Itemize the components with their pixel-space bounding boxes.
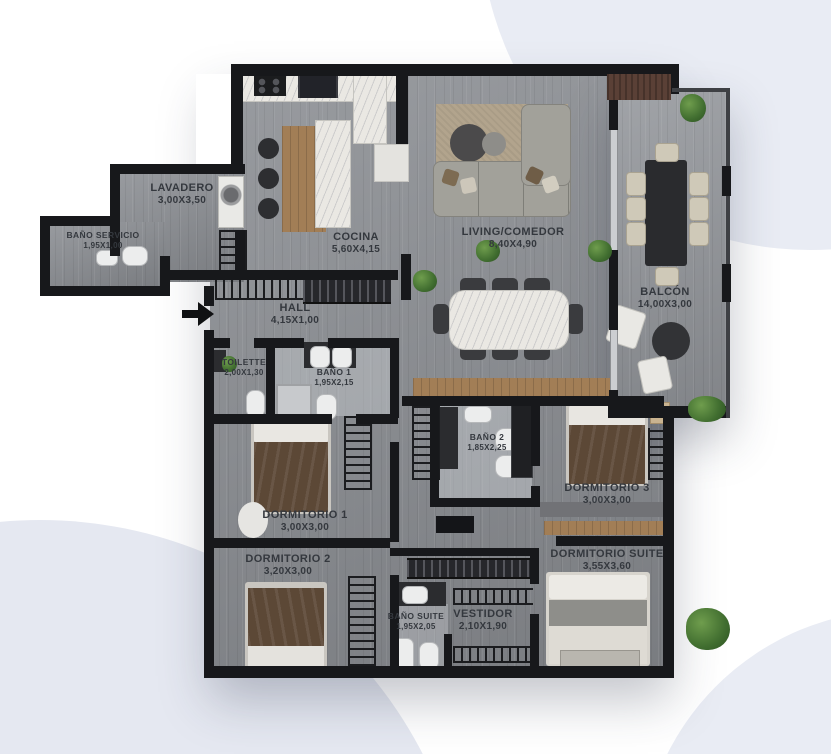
bed-dormitorio2-duvet bbox=[248, 588, 324, 646]
wall-hall-bottom-b bbox=[254, 338, 304, 348]
plant bbox=[680, 94, 706, 122]
plant bbox=[686, 608, 730, 650]
sideboard bbox=[413, 378, 615, 398]
hall-closet-dark bbox=[303, 278, 391, 304]
room-name: BAÑO SERVICIO bbox=[52, 231, 154, 241]
wall-suite-top bbox=[556, 536, 674, 546]
room-dims: 1,95X2,15 bbox=[302, 378, 366, 387]
balcony-chair bbox=[689, 222, 709, 246]
balcony-chair bbox=[626, 172, 646, 196]
bano2-sink bbox=[464, 406, 492, 423]
balcony-chair bbox=[626, 197, 646, 221]
balcony-chair bbox=[655, 267, 679, 286]
room-dims: 3,00X3,00 bbox=[557, 495, 657, 507]
wall-right-lower bbox=[663, 414, 674, 678]
wall-kitchen-right bbox=[396, 72, 408, 144]
wall-window-seg-bottom bbox=[609, 390, 618, 408]
room-name: LAVADERO bbox=[132, 182, 232, 195]
room-dims: 1,85X2,25 bbox=[455, 443, 519, 452]
wall-lavadero-left bbox=[110, 164, 120, 224]
wall-corridor-left-a bbox=[390, 338, 399, 418]
room-name: COCINA bbox=[306, 231, 406, 244]
fridge bbox=[374, 144, 409, 182]
exterior-notch bbox=[196, 74, 235, 172]
wall-servicio-bottom bbox=[40, 286, 170, 296]
balcony-chair bbox=[655, 143, 679, 162]
banosuite-sink bbox=[402, 586, 428, 604]
plant bbox=[588, 240, 612, 262]
room-dims: 3,20X3,00 bbox=[238, 566, 338, 578]
island-stool bbox=[258, 138, 279, 159]
dormitorio2-closet-hatch bbox=[348, 576, 376, 666]
balcony-chair bbox=[626, 222, 646, 246]
room-name: HALL bbox=[245, 302, 345, 315]
dining-table bbox=[449, 290, 569, 350]
dormitorio1-closet-hatch bbox=[344, 416, 372, 490]
room-dims: 3,00X3,00 bbox=[255, 522, 355, 534]
bed-dormitorio3-duvet bbox=[569, 425, 645, 484]
island-stool bbox=[258, 168, 279, 189]
cooktop bbox=[254, 76, 286, 96]
entrance-arrow-head bbox=[198, 302, 214, 326]
room-name: DORMITORIO 2 bbox=[238, 553, 338, 566]
room-name: TOILETTE bbox=[213, 358, 275, 368]
room-label-vestidor: VESTIDOR 2,10X1,90 bbox=[446, 608, 520, 632]
oven bbox=[298, 74, 338, 98]
wall-kitchen-stub bbox=[401, 254, 411, 300]
wall-servicio-left bbox=[40, 216, 50, 296]
parapet-balcony-right bbox=[726, 88, 730, 418]
parapet-column bbox=[722, 166, 731, 196]
room-name: BAÑO 1 bbox=[302, 368, 366, 378]
wall-bano2-left bbox=[430, 404, 439, 502]
parapet-balcony-top bbox=[672, 88, 730, 92]
wall-lavadero-top bbox=[110, 164, 245, 174]
dresser-wood bbox=[544, 521, 664, 535]
room-dims: 3,00X3,50 bbox=[132, 195, 232, 207]
room-dims: 1,95X2,05 bbox=[386, 622, 446, 631]
bano1-sink bbox=[332, 346, 352, 368]
wall-hall-top bbox=[162, 270, 398, 280]
room-label-dormitorio-suite: DORMITORIO SUITE 3,55X3,60 bbox=[545, 548, 669, 572]
room-label-dormitorio-1: DORMITORIO 1 3,00X3,00 bbox=[255, 509, 355, 533]
vestidor-hatch-bottom bbox=[453, 646, 533, 663]
floor-plan-image: LAVADERO 3,00X3,50 BAÑO SERVICIO 1,95X1,… bbox=[0, 0, 831, 754]
plant bbox=[688, 396, 726, 422]
wall-hall-bottom-a bbox=[204, 338, 230, 348]
wall-dorm3-left-a bbox=[531, 404, 540, 466]
bed-suite-band bbox=[549, 600, 647, 626]
room-dims: 3,55X3,60 bbox=[545, 561, 669, 573]
room-dims: 5,60X4,15 bbox=[306, 244, 406, 256]
entrance-arrow-bar bbox=[182, 310, 198, 318]
room-label-dormitorio-2: DORMITORIO 2 3,20X3,00 bbox=[238, 553, 338, 577]
room-label-living-comedor: LIVING/COMEDOR 8,40X4,90 bbox=[448, 226, 578, 250]
room-name: BAÑO 2 bbox=[455, 433, 519, 443]
room-name: BALCÓN bbox=[615, 286, 715, 299]
room-label-dormitorio-3: DORMITORIO 3 3,00X3,00 bbox=[557, 482, 657, 506]
room-dims: 2,10X1,90 bbox=[446, 621, 520, 633]
room-name: LIVING/COMEDOR bbox=[448, 226, 578, 239]
wall-vestidor-bano-divider bbox=[444, 634, 452, 668]
island-stool bbox=[258, 198, 279, 219]
bed-suite-pillows bbox=[549, 575, 647, 599]
coffee-table-small bbox=[482, 132, 506, 156]
dining-chair bbox=[433, 304, 449, 334]
balcony-chair bbox=[689, 172, 709, 196]
room-label-toilette: TOILETTE 2,00X1,30 bbox=[213, 358, 275, 377]
wall-cocina-left bbox=[231, 64, 243, 172]
room-name: DORMITORIO SUITE bbox=[545, 548, 669, 561]
wall-hall-bottom-c bbox=[328, 338, 398, 348]
room-dims: 1,95X1,00 bbox=[52, 241, 154, 250]
room-name: DORMITORIO 1 bbox=[255, 509, 355, 522]
room-label-bano-servicio: BAÑO SERVICIO 1,95X1,00 bbox=[52, 231, 154, 250]
wall-servicio-top bbox=[40, 216, 120, 226]
wall-left-lower bbox=[204, 330, 214, 678]
planter-top-right bbox=[607, 74, 671, 100]
room-label-bano-2: BAÑO 2 1,85X2,25 bbox=[455, 433, 519, 452]
kitchen-counter-right bbox=[353, 72, 387, 144]
balcony-table bbox=[645, 160, 687, 266]
room-dims: 4,15X1,00 bbox=[245, 315, 345, 327]
room-dims: 14,00X3,00 bbox=[615, 299, 715, 311]
room-dims: 2,00X1,30 bbox=[213, 368, 275, 377]
room-dims: 8,40X4,90 bbox=[448, 239, 578, 251]
window-living-balcony bbox=[610, 328, 618, 392]
corridor-console bbox=[436, 516, 474, 533]
room-label-lavadero: LAVADERO 3,00X3,50 bbox=[132, 182, 232, 206]
room-name: VESTIDOR bbox=[446, 608, 520, 621]
parapet-column bbox=[722, 264, 731, 302]
wall-suite-left-a bbox=[530, 548, 539, 584]
room-label-hall: HALL 4,15X1,00 bbox=[245, 302, 345, 326]
vestidor-hatch-top bbox=[407, 558, 533, 579]
bed-dormitorio1-duvet bbox=[254, 442, 328, 512]
room-name: DORMITORIO 3 bbox=[557, 482, 657, 495]
kitchen-island-marble bbox=[315, 120, 351, 228]
plant bbox=[413, 270, 437, 292]
entrance-arrow bbox=[182, 302, 216, 326]
room-label-cocina: COCINA 5,60X4,15 bbox=[306, 231, 406, 255]
wall-corridor-left-b bbox=[390, 442, 399, 542]
sofa-pillow bbox=[460, 177, 478, 195]
bano1-sink bbox=[310, 346, 330, 368]
dining-chair bbox=[567, 304, 583, 334]
room-label-bano-suite: BAÑO SUITE 1,95X2,05 bbox=[386, 612, 446, 631]
wall-bottom bbox=[206, 666, 674, 678]
balcony-round-table bbox=[652, 322, 690, 360]
window-living-balcony bbox=[610, 128, 618, 252]
room-label-bano-1: BAÑO 1 1,95X2,15 bbox=[302, 368, 366, 387]
wall-suite-left-b bbox=[530, 614, 539, 668]
vestidor-hatch-mid bbox=[453, 588, 533, 605]
room-label-balcon: BALCÓN 14,00X3,00 bbox=[615, 286, 715, 310]
wall-dorm3-left-b bbox=[531, 486, 540, 502]
wall-dorm1-dorm2-divider bbox=[204, 538, 390, 548]
wall-vestidor-top bbox=[390, 548, 538, 556]
wall-bano2-bottom bbox=[430, 498, 540, 507]
room-name: BAÑO SUITE bbox=[386, 612, 446, 622]
wall-baths-bottom-a bbox=[212, 414, 332, 424]
hall-closet-hatch bbox=[215, 278, 303, 300]
balcony-chair bbox=[689, 197, 709, 221]
